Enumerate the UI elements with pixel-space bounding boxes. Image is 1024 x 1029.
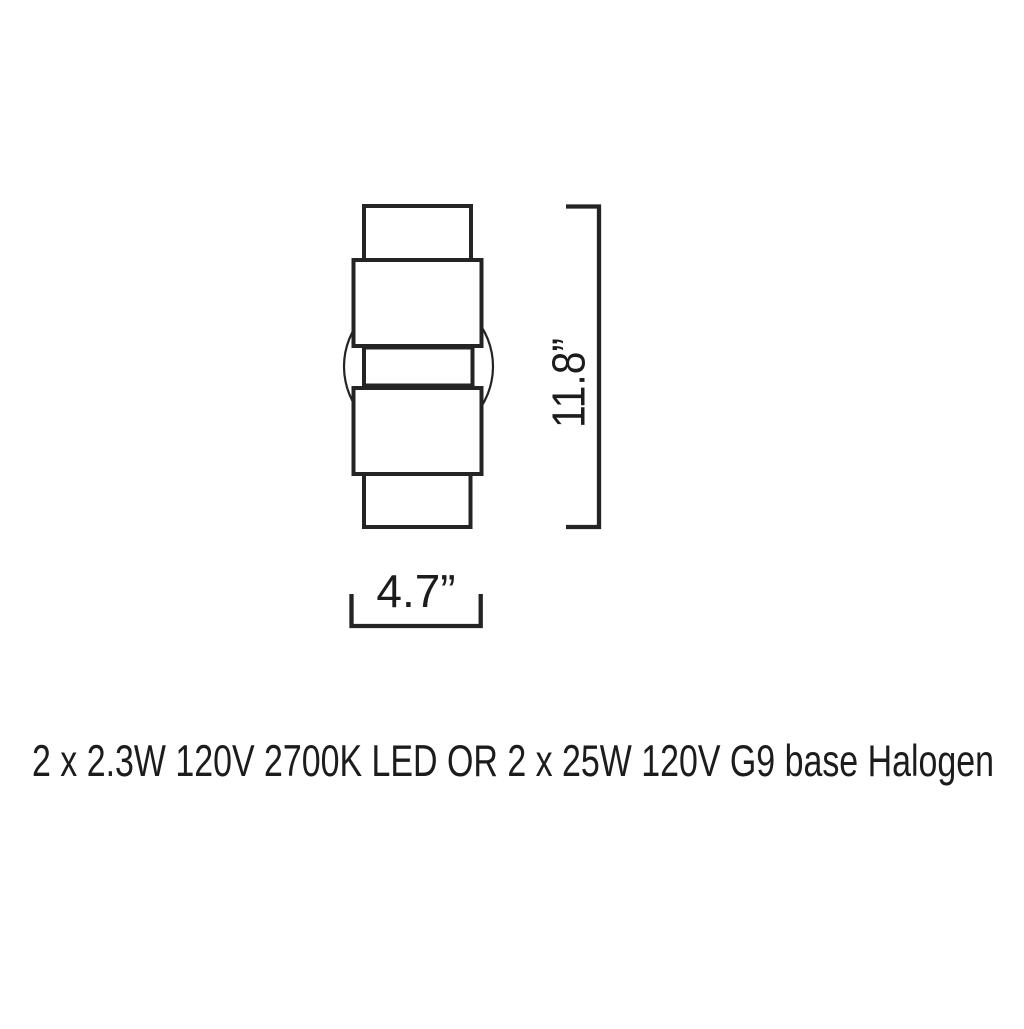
svg-text:2 x 2.3W 120V 2700K LED OR 2 x: 2 x 2.3W 120V 2700K LED OR 2 x 25W 120V … bbox=[32, 737, 994, 786]
svg-text:4.7”: 4.7” bbox=[376, 565, 455, 617]
svg-text:11.8”: 11.8” bbox=[543, 338, 595, 428]
